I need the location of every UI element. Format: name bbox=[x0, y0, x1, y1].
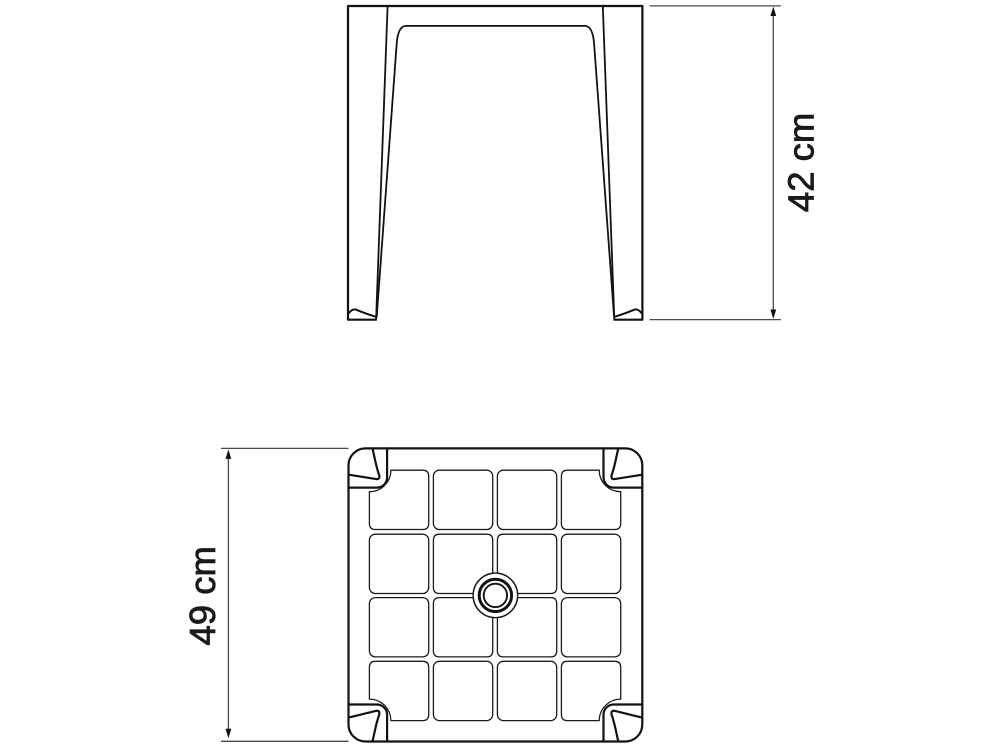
svg-text:42 cm: 42 cm bbox=[781, 113, 822, 212]
svg-text:49 cm: 49 cm bbox=[182, 546, 223, 645]
